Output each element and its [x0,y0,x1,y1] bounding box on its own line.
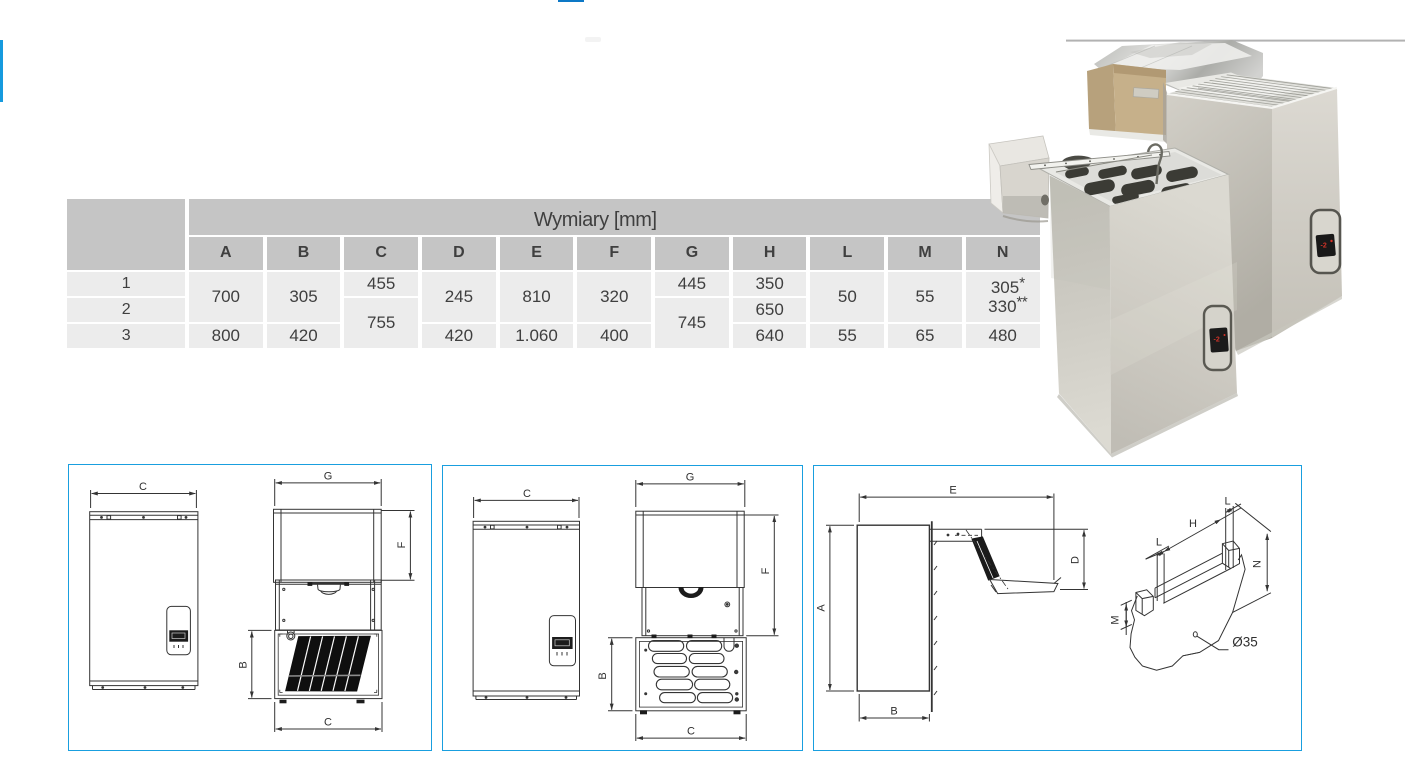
svg-text:H: H [1189,518,1197,530]
svg-text:C: C [139,481,147,493]
svg-text:C: C [324,717,332,729]
svg-text:G: G [324,471,333,483]
svg-text:M: M [1110,615,1122,624]
svg-text:C: C [687,726,695,738]
svg-text:L: L [1224,496,1230,508]
svg-text:B: B [890,706,897,718]
svg-text:L: L [1156,537,1162,549]
svg-text:A: A [816,604,828,612]
svg-text:B: B [597,672,609,679]
svg-text:E: E [949,485,956,497]
svg-text:F: F [396,541,408,548]
svg-text:G: G [686,472,695,484]
svg-text:B: B [238,661,250,668]
svg-text:N: N [1252,560,1264,568]
svg-text:C: C [523,488,531,500]
svg-text:F: F [760,567,772,574]
svg-text:D: D [1070,556,1082,564]
svg-text:Ø35: Ø35 [1232,635,1258,650]
svg-text:-2: -2 [1214,337,1220,344]
svg-text:-2: -2 [1321,243,1327,250]
